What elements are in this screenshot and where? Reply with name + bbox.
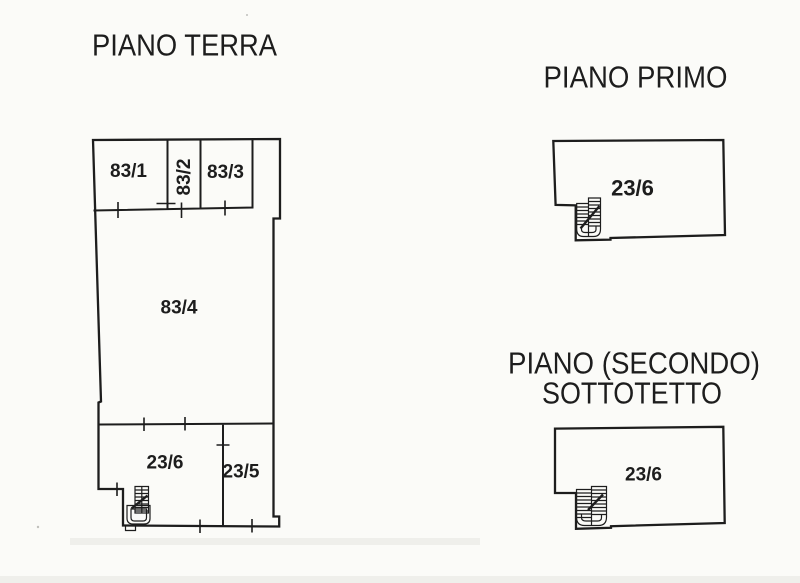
scan-speck — [37, 526, 39, 528]
piano-primo-title: PIANO PRIMO — [544, 60, 728, 95]
piano-terra-title: PIANO TERRA — [92, 28, 277, 63]
floorplan-sheet: PIANO TERRA 83/1 83/2 83/3 83/4 23/6 23/… — [0, 0, 800, 583]
scanned-floorplan-svg: PIANO TERRA 83/1 83/2 83/3 83/4 23/6 23/… — [0, 0, 800, 583]
scan-streak — [70, 538, 480, 545]
room-label-83-2: 83/2 — [174, 159, 195, 196]
piano-sottotetto-title-line2: SOTTOTETTO — [542, 376, 722, 411]
room-label-83-1: 83/1 — [110, 161, 147, 182]
primo-staircase-symbol — [577, 198, 601, 237]
scan-speck — [246, 14, 248, 16]
room-label-23-6-terra: 23/6 — [147, 453, 184, 474]
plan-piano-primo: PIANO PRIMO 23/6 — [544, 60, 728, 241]
terra-staircase-symbol — [126, 487, 151, 531]
scan-streak — [0, 576, 800, 583]
room-label-23-5: 23/5 — [223, 462, 260, 483]
room-label-23-6-primo: 23/6 — [611, 176, 654, 201]
terra-door-opening-ticks — [117, 201, 252, 534]
room-label-23-6-sottotetto: 23/6 — [625, 465, 662, 486]
room-label-83-3: 83/3 — [207, 162, 244, 183]
room-label-83-4: 83/4 — [161, 298, 198, 319]
sottotetto-staircase-symbol — [577, 487, 607, 526]
plan-piano-terra: PIANO TERRA 83/1 83/2 83/3 83/4 23/6 23/… — [92, 28, 280, 534]
plan-piano-sottotetto: PIANO (SECONDO) SOTTOTETTO 23/6 — [508, 346, 760, 529]
